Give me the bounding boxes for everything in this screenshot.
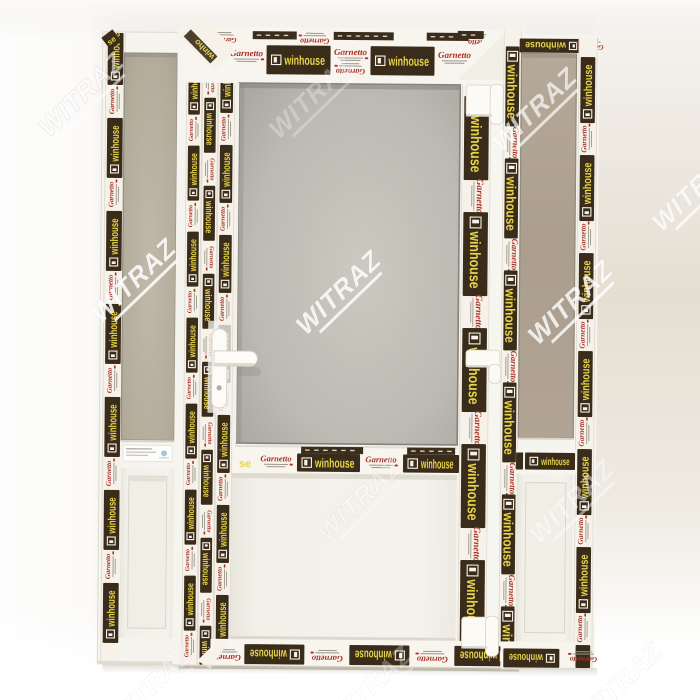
svg-text:winhouse: winhouse — [502, 288, 517, 344]
svg-text:Garnetto: Garnetto — [217, 476, 224, 501]
svg-text:Garnetto: Garnetto — [186, 463, 192, 485]
svg-text:winhouse: winhouse — [503, 176, 518, 232]
svg-text:Garnetto: Garnetto — [578, 321, 587, 348]
svg-text:winhouse: winhouse — [467, 114, 485, 172]
svg-text:winhouse: winhouse — [109, 218, 121, 255]
svg-text:Garnetto: Garnetto — [312, 654, 343, 664]
svg-text:winhouse: winhouse — [583, 65, 595, 108]
svg-text:Garnetto: Garnetto — [474, 178, 485, 213]
svg-text:Garnetto: Garnetto — [108, 88, 116, 114]
svg-text:winhouse: winhouse — [107, 404, 119, 441]
svg-text:Garnetto: Garnetto — [471, 526, 482, 561]
svg-text:winhouse: winhouse — [200, 464, 211, 497]
svg-text:winhouse: winhouse — [200, 552, 211, 585]
svg-text:Garnetto: Garnetto — [220, 116, 227, 141]
svg-text:winhouse: winhouse — [218, 422, 230, 457]
svg-text:winhouse: winhouse — [578, 555, 590, 598]
svg-text:Garnetto: Garnetto — [208, 246, 214, 268]
svg-text:Garnetto: Garnetto — [187, 377, 193, 399]
svg-text:winhouse: winhouse — [187, 411, 198, 444]
svg-text:Garnetto: Garnetto — [577, 419, 586, 446]
svg-text:Garnetto: Garnetto — [507, 575, 517, 607]
svg-text:winhouse: winhouse — [106, 590, 118, 627]
svg-text:Garnetto: Garnetto — [187, 291, 193, 313]
svg-text:winhouse: winhouse — [284, 53, 325, 68]
svg-text:winhouse: winhouse — [220, 242, 232, 277]
svg-text:Garnetto: Garnetto — [220, 206, 227, 231]
svg-text:Garnetto: Garnetto — [473, 294, 484, 329]
svg-text:Garnetto: Garnetto — [106, 367, 114, 393]
svg-text:winhouse: winhouse — [188, 239, 199, 272]
svg-text:winhouse: winhouse — [186, 497, 197, 530]
svg-text:winhouse: winhouse — [217, 602, 229, 637]
svg-text:winhouse: winhouse — [185, 583, 196, 616]
svg-text:Garnetto: Garnetto — [300, 37, 329, 46]
svg-text:winhouse: winhouse — [250, 647, 288, 661]
svg-text:Garnetto: Garnetto — [569, 655, 597, 664]
svg-text:Garnetto: Garnetto — [510, 239, 520, 271]
svg-text:winhouse: winhouse — [466, 230, 484, 288]
svg-text:winhouse: winhouse — [189, 153, 200, 186]
svg-text:Garnetto: Garnetto — [230, 48, 264, 58]
svg-text:Garnetto: Garnetto — [417, 655, 448, 665]
svg-text:Garnetto: Garnetto — [105, 460, 113, 486]
svg-text:Garnetto: Garnetto — [578, 223, 587, 250]
svg-text:Garnetto: Garnetto — [260, 453, 291, 463]
svg-text:Garnetto: Garnetto — [206, 422, 212, 444]
svg-text:Garnetto: Garnetto — [575, 615, 584, 642]
svg-text:Garnetto: Garnetto — [216, 566, 223, 591]
svg-text:winhouse: winhouse — [582, 163, 594, 206]
svg-text:Garnetto: Garnetto — [576, 517, 585, 544]
svg-text:winhouse: winhouse — [106, 497, 118, 534]
svg-text:Garnetto: Garnetto — [188, 205, 194, 227]
svg-text:Garnetto: Garnetto — [579, 125, 588, 152]
svg-text:winhouse: winhouse — [500, 512, 515, 568]
svg-text:Garnetto: Garnetto — [107, 181, 115, 207]
svg-text:winhouse: winhouse — [540, 456, 569, 468]
svg-text:winhouse: winhouse — [580, 359, 592, 402]
svg-text:winhouse: winhouse — [314, 455, 354, 470]
svg-text:Garnetto: Garnetto — [208, 158, 214, 180]
svg-text:Garnetto: Garnetto — [205, 598, 211, 620]
svg-text:Garnetto: Garnetto — [185, 549, 191, 571]
svg-text:winhouse: winhouse — [420, 456, 453, 471]
svg-text:winhouse: winhouse — [187, 325, 198, 358]
svg-text:winhouse: winhouse — [203, 112, 214, 145]
svg-text:winhouse: winhouse — [525, 39, 567, 50]
svg-text:winhouse: winhouse — [509, 651, 544, 663]
svg-text:winhouse: winhouse — [221, 152, 233, 187]
svg-text:Garnetto: Garnetto — [438, 50, 472, 60]
svg-text:se: se — [239, 458, 251, 470]
svg-text:Garnetto: Garnetto — [472, 410, 483, 445]
svg-text:Garnetto: Garnetto — [509, 351, 519, 383]
svg-text:Garnetto: Garnetto — [189, 119, 195, 141]
svg-text:winhouse: winhouse — [464, 462, 482, 520]
svg-text:Garnetto: Garnetto — [219, 296, 226, 321]
svg-text:Garnetto: Garnetto — [104, 553, 112, 579]
svg-text:winhouse: winhouse — [388, 54, 429, 69]
svg-text:winhouse: winhouse — [501, 400, 516, 456]
svg-text:winhouse: winhouse — [218, 512, 230, 547]
svg-text:winhouse: winhouse — [203, 200, 214, 233]
svg-text:winhouse: winhouse — [110, 125, 122, 162]
svg-text:winhouse: winhouse — [202, 288, 213, 321]
svg-text:Garnetto: Garnetto — [205, 510, 211, 532]
